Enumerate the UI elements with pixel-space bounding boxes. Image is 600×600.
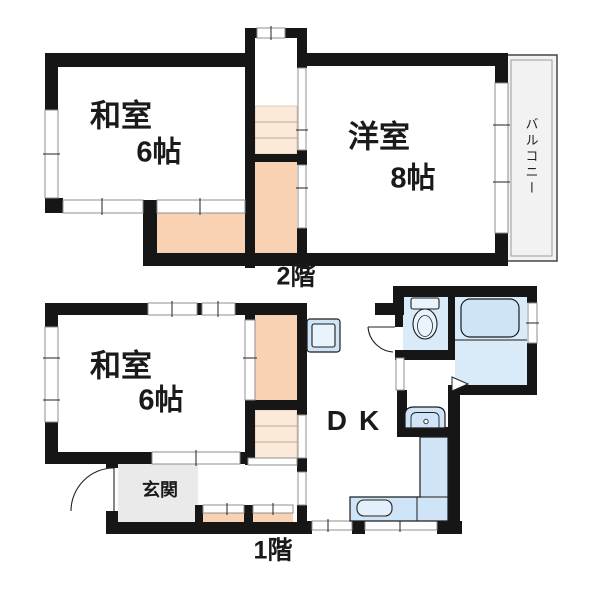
- sliding-door: [298, 415, 306, 458]
- floor2-yoshitsu-size: 8帖: [390, 165, 435, 194]
- stair-hall-1f: [255, 315, 297, 400]
- wall: [195, 505, 203, 522]
- wall: [245, 400, 255, 465]
- sliding-door: [298, 165, 306, 228]
- wall: [45, 53, 245, 67]
- washing-machine-inner: [312, 324, 335, 347]
- wall: [527, 286, 537, 303]
- floor2-title: 2階: [277, 265, 316, 290]
- wall: [297, 458, 307, 472]
- window: [157, 200, 245, 213]
- toilet-door-swing-icon: [368, 327, 393, 352]
- wall: [352, 521, 365, 534]
- wall: [106, 522, 308, 534]
- floor1-title: 1階: [254, 539, 293, 564]
- wall: [45, 67, 58, 110]
- wall: [393, 286, 537, 297]
- window: [63, 200, 143, 213]
- bathtub-icon: [461, 299, 519, 337]
- balcony-label: バルコニー: [525, 117, 538, 197]
- wall: [245, 28, 257, 38]
- window: [365, 521, 437, 530]
- balcony-window: [495, 83, 508, 233]
- floorplan-svg: [0, 0, 600, 600]
- floor1-washitsu-size: 6帖: [138, 387, 183, 416]
- veranda-strip: [203, 513, 244, 522]
- wall: [297, 28, 307, 68]
- wall: [255, 400, 297, 410]
- washbasin-drain: [424, 419, 428, 423]
- floor2-washitsu-label: 和室: [90, 101, 152, 132]
- wall: [244, 505, 253, 522]
- floor1-plan: [43, 286, 539, 534]
- stair-hall-2f: [255, 162, 297, 253]
- opening: [248, 458, 297, 465]
- sliding-door: [298, 472, 306, 505]
- wall: [106, 455, 118, 468]
- floor2-plan: [43, 26, 557, 268]
- genkan-label: 玄関: [142, 481, 178, 499]
- hallway-2f: [155, 213, 245, 253]
- window: [45, 327, 58, 422]
- sliding-door: [245, 320, 255, 400]
- wall: [245, 28, 255, 268]
- wall: [307, 53, 508, 66]
- wall: [45, 198, 63, 213]
- wall: [375, 303, 393, 315]
- stairs-upper-treads: [255, 106, 297, 154]
- wall: [45, 452, 152, 464]
- wall: [143, 253, 508, 266]
- entrance-door-swing-icon: [71, 468, 114, 511]
- dk-label: DK: [327, 407, 391, 435]
- kitchen-sink-icon: [357, 500, 392, 516]
- floor1-washitsu-label: 和室: [90, 351, 152, 382]
- window: [203, 505, 244, 513]
- wall: [255, 154, 297, 162]
- wall: [395, 297, 403, 327]
- wall: [495, 53, 508, 83]
- floor2-washitsu-size: 6帖: [136, 139, 181, 168]
- wall: [297, 150, 307, 165]
- wall: [245, 303, 255, 320]
- window: [312, 521, 352, 530]
- floor-plan: 和室 6帖 洋室 8帖 バルコニー 2階 和室 6帖 DK 玄関 1階: [0, 0, 600, 600]
- wall: [448, 385, 460, 534]
- toilet-bowl: [413, 309, 437, 339]
- wall: [300, 521, 312, 534]
- sliding-door: [298, 68, 306, 150]
- floor2-yoshitsu-label: 洋室: [348, 122, 410, 153]
- wall: [45, 303, 148, 315]
- opening: [396, 358, 404, 390]
- stairs-lower-treads: [255, 410, 297, 458]
- wall: [448, 297, 455, 350]
- toilet-icon: [411, 298, 439, 309]
- wall: [297, 303, 307, 415]
- wall: [45, 315, 58, 327]
